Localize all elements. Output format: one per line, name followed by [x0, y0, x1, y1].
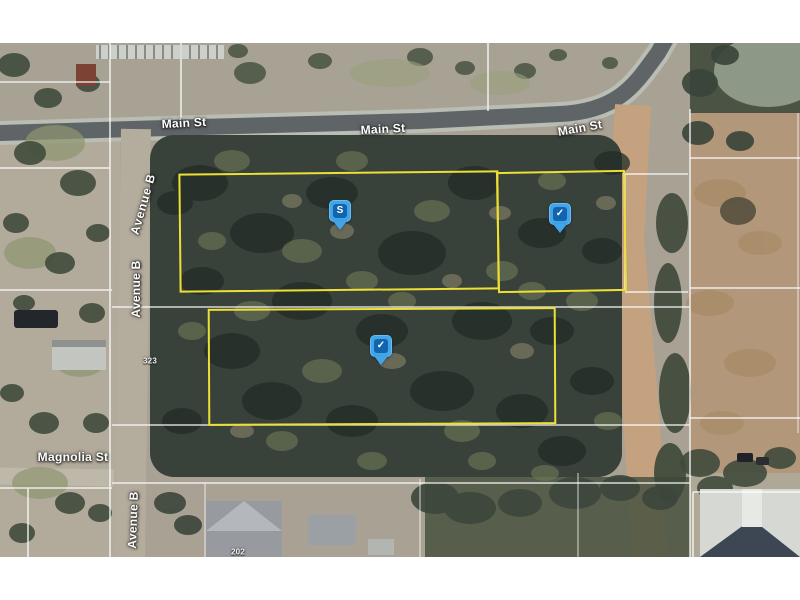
map-pin-s[interactable]: S — [329, 200, 351, 230]
parcel-outline-south[interactable] — [208, 307, 557, 426]
checkmark-icon: ✓ — [553, 207, 567, 221]
pin-head: S — [329, 200, 351, 222]
satellite-map — [0, 43, 800, 557]
checkmark-icon: ✓ — [374, 339, 388, 353]
s-badge-icon: S — [333, 204, 347, 218]
map-pin-check-east[interactable]: ✓ — [549, 203, 571, 233]
pin-tail — [553, 224, 567, 233]
satellite-imagery — [0, 43, 800, 557]
pin-head: ✓ — [370, 335, 392, 357]
listing-photo: Main St Main St Main St Avenue B Avenue … — [0, 0, 800, 600]
map-pin-check-south[interactable]: ✓ — [370, 335, 392, 365]
pin-tail — [333, 221, 347, 230]
parcel-outline-northwest[interactable] — [178, 170, 499, 292]
pin-head: ✓ — [549, 203, 571, 225]
pin-tail — [374, 356, 388, 365]
